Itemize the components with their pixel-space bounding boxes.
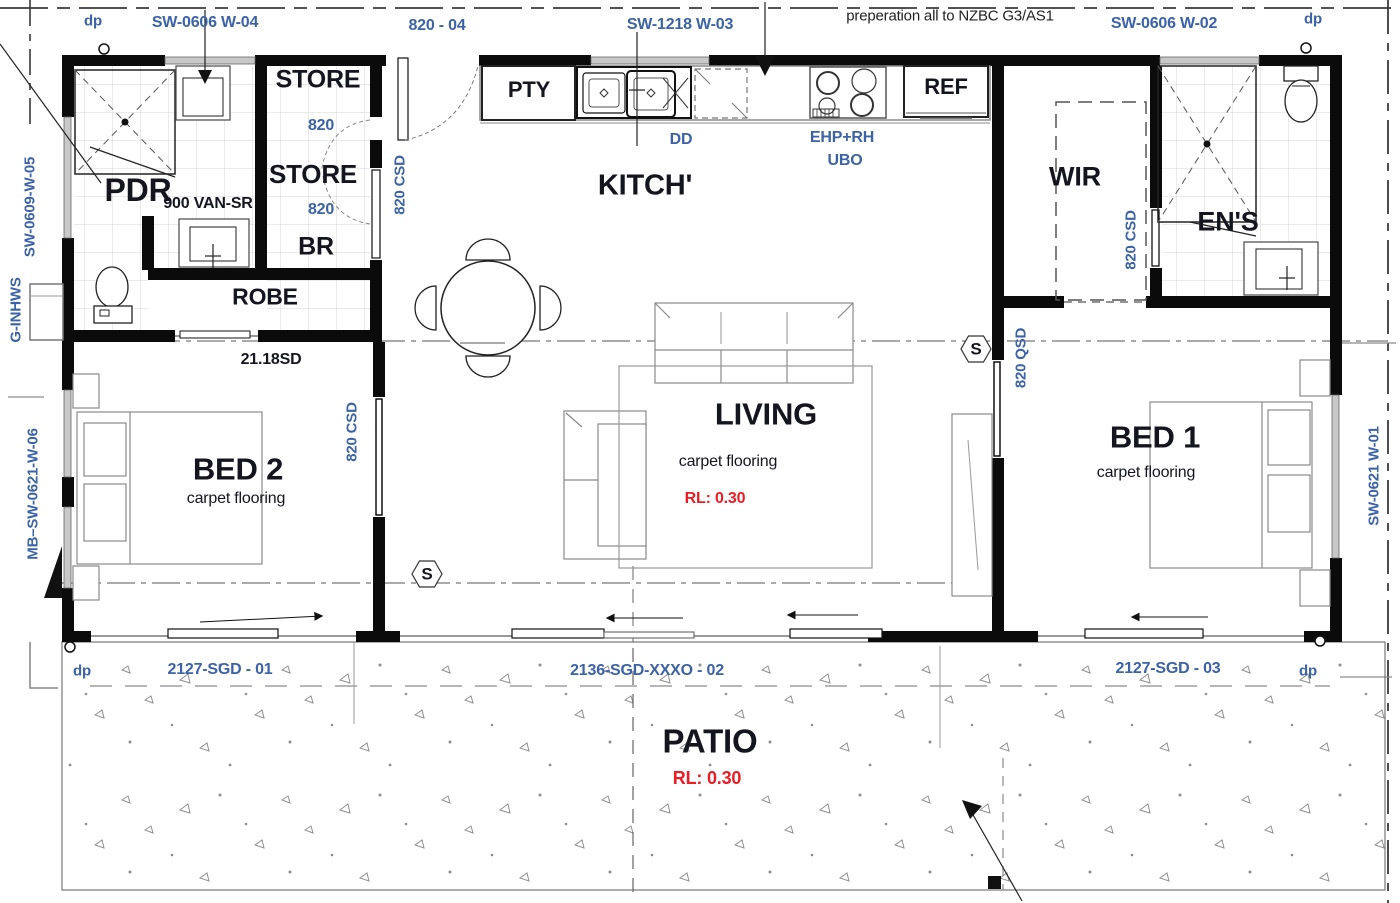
- door-code-820qsd: 820 QSD: [1014, 328, 1029, 388]
- switch-s-hall: S: [970, 341, 981, 358]
- door-code-sgd03: 2127-SGD - 03: [1115, 661, 1220, 677]
- switch-s-bed2: S: [421, 566, 432, 583]
- room-kitchen: KITCH': [598, 172, 692, 201]
- door-code-820csd-entry: 820 CSD: [393, 155, 408, 214]
- window-code-w03: SW-1218 W-03: [627, 17, 733, 33]
- door-code-sgd01: 2127-SGD - 01: [167, 662, 272, 678]
- room-wir: WIR: [1049, 164, 1101, 191]
- room-bed2: BED 2: [193, 454, 283, 485]
- door-code-820-04: 820 - 04: [408, 18, 465, 34]
- window-code-w06: MB–SW-0621-W-06: [26, 428, 41, 559]
- door-code-2118sd: 21.18SD: [241, 352, 302, 368]
- patio-rl: RL: 0.30: [673, 769, 741, 787]
- door-code-sgd02: 2136-SGD-XXXO - 02: [570, 663, 724, 679]
- label-ref: REF: [924, 76, 967, 98]
- dp-bottom-right: dp: [1299, 664, 1317, 679]
- room-bed1: BED 1: [1110, 422, 1200, 453]
- room-living: LIVING: [715, 399, 817, 430]
- label-g-inhws: G-INHWS: [9, 277, 24, 342]
- room-patio: PATIO: [663, 725, 758, 758]
- living-floor: carpet flooring: [679, 454, 777, 470]
- label-ehp-rh: EHP+RH: [810, 130, 874, 146]
- window-code-w05: SW-0609-W-05: [23, 157, 38, 257]
- door-820-store-top: 820: [308, 118, 334, 134]
- label-ubo: UBO: [828, 153, 863, 169]
- fixture-van-sr: 900 VAN-SR: [163, 196, 252, 212]
- dp-top-right: dp: [1304, 12, 1322, 27]
- window-code-w02: SW-0606 W-02: [1111, 16, 1217, 32]
- dp-bottom-left: dp: [73, 664, 91, 679]
- door-820-store: 820: [308, 202, 334, 218]
- label-dd: DD: [670, 132, 693, 148]
- room-store-top: STORE: [276, 68, 361, 93]
- room-robe: ROBE: [232, 286, 298, 309]
- dp-top-left: dp: [84, 14, 102, 29]
- labels-layer: dpSW-0606 W-04820 - 04SW-1218 W-03preper…: [0, 0, 1400, 903]
- bed1-floor: carpet flooring: [1097, 465, 1195, 481]
- door-code-820csd-bed2: 820 CSD: [345, 402, 360, 461]
- living-rl: RL: 0.30: [685, 491, 746, 507]
- window-code-w01: SW-0621 W-01: [1367, 426, 1382, 526]
- window-code-w04: SW-0606 W-04: [152, 15, 258, 31]
- room-pdr: PDR: [105, 174, 172, 206]
- bed2-floor: carpet flooring: [187, 491, 285, 507]
- room-ens: EN'S: [1197, 209, 1258, 236]
- floor-plan: dpSW-0606 W-04820 - 04SW-1218 W-03preper…: [0, 0, 1400, 903]
- room-store: STORE: [269, 161, 357, 187]
- note-preparation: preperation all to NZBC G3/AS1: [846, 9, 1053, 24]
- room-br: BR: [298, 235, 334, 260]
- room-pty: PTY: [508, 79, 550, 101]
- door-code-820csd-ens: 820 CSD: [1124, 210, 1139, 269]
